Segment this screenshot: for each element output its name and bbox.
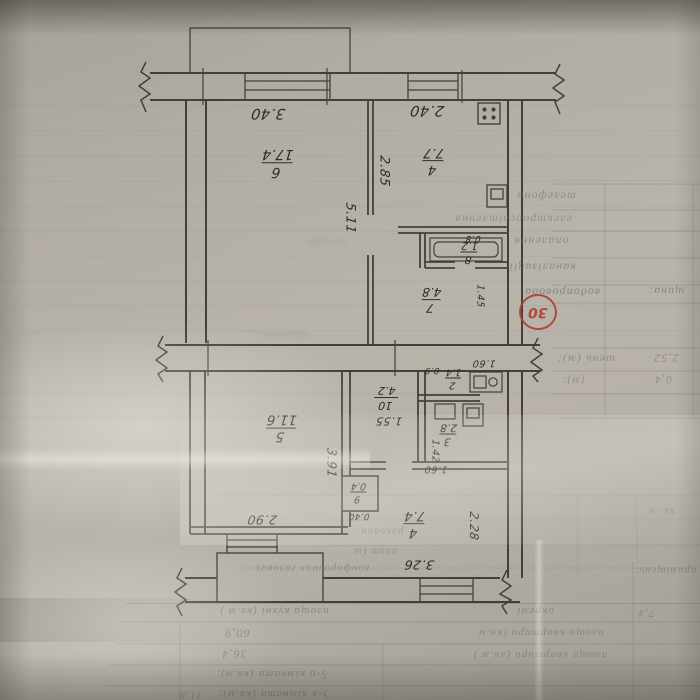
room-area: 0.4 bbox=[350, 481, 367, 492]
room-label: 5 11.6 bbox=[264, 412, 297, 443]
dim-label: 0.9 bbox=[424, 365, 440, 375]
room-label: 3 2.8 bbox=[438, 421, 457, 446]
dim-label: 2.28 bbox=[467, 511, 481, 541]
form-room3-label: 3-я кімната (кв.м): bbox=[217, 688, 328, 700]
room-label: 7 4.8 bbox=[420, 286, 442, 314]
form-living-value: 36,4 bbox=[221, 647, 246, 662]
form-utility-water: водопровода bbox=[524, 285, 600, 300]
upper-apartment-plan bbox=[139, 28, 564, 345]
dim-label: 2.90 bbox=[246, 513, 278, 528]
room-number: 10 bbox=[373, 398, 398, 412]
room5-wall bbox=[190, 527, 348, 534]
dim-label: 3.91 bbox=[325, 447, 340, 479]
lower-apartment-plan bbox=[175, 371, 522, 616]
dim-label: 1.55 bbox=[375, 415, 403, 428]
room-label: 10 4.2 bbox=[373, 385, 400, 411]
form-height-label: шень (м): bbox=[557, 352, 615, 367]
room-area: 7.7 bbox=[423, 146, 445, 161]
room-area: 1.2 bbox=[461, 239, 479, 251]
room-number: 4 bbox=[421, 161, 443, 177]
room-area: 2.8 bbox=[440, 421, 458, 433]
room-number: 6 bbox=[260, 163, 293, 180]
form-kitchen-row-mid: окремі bbox=[516, 605, 553, 617]
toilet-icon bbox=[470, 372, 502, 392]
room-number: 2 bbox=[444, 378, 461, 390]
kitchen-sink-icon bbox=[487, 185, 507, 207]
window-symbol bbox=[420, 578, 473, 602]
dim-label: 1.42 bbox=[430, 439, 441, 464]
form-utility-heating: опалення bbox=[513, 234, 568, 249]
form-utility-phone: телефона bbox=[516, 189, 575, 204]
dim-label: 5.11 bbox=[343, 202, 358, 235]
balcony-top bbox=[190, 28, 350, 73]
stamp-number: 30 bbox=[528, 304, 547, 320]
form-fragment-stoves: плит (ш bbox=[353, 546, 397, 557]
room-number: 5 bbox=[264, 428, 296, 444]
form-room5-label: 5-а кімната (кв.м): bbox=[215, 668, 327, 680]
form-utility-electric: електроосвітлення bbox=[454, 212, 572, 227]
room-label: 6 17.4 bbox=[260, 147, 295, 179]
room-area: 7.4 bbox=[404, 509, 426, 524]
room-area: 1.4 bbox=[445, 367, 462, 378]
room-area: 4.2 bbox=[374, 385, 399, 398]
room-number: 7 bbox=[420, 300, 441, 315]
window-symbol bbox=[227, 534, 277, 553]
room-area: 4.8 bbox=[422, 286, 443, 300]
form-fragment: кв. м bbox=[648, 506, 675, 517]
showthrough-fragment: орочних bbox=[262, 327, 310, 342]
form-section-label: щина: bbox=[648, 284, 685, 299]
form-room3-value: 11,8 bbox=[179, 689, 202, 700]
room-number: 9 bbox=[349, 492, 366, 504]
form-kitchen-row-label: площа кухні (кв.м ) bbox=[219, 605, 328, 617]
form-fragment-burners: конфорочних газових bbox=[255, 563, 369, 574]
room-number: 4 bbox=[402, 524, 424, 540]
room-label: 2 1.4 bbox=[444, 367, 462, 390]
dim-label: 2.85 bbox=[377, 155, 392, 188]
photo-of-floorplan-document: 3.40 2.40 2.85 5.11 0.8 1.45 6 17.4 4 7.… bbox=[0, 0, 700, 700]
floor-plan-drawing bbox=[0, 0, 700, 700]
dim-label: 0.40 bbox=[348, 511, 370, 521]
form-fragment-premises: приміщень: bbox=[634, 565, 697, 576]
room-label: 4 7.4 bbox=[402, 509, 426, 539]
dim-label: 1.45 bbox=[475, 284, 486, 309]
room-area: 11.6 bbox=[266, 412, 298, 427]
balcony-bottom bbox=[217, 553, 323, 601]
form-kitchen-row-value: 7,4 bbox=[637, 607, 654, 619]
form-total-label: площа квартири (кв.м bbox=[478, 627, 604, 639]
room-label: 9 0.4 bbox=[349, 481, 367, 504]
form-total-value: 60,9 bbox=[224, 626, 249, 641]
dim-label: 3.26 bbox=[403, 558, 435, 573]
room-area: 17.4 bbox=[261, 147, 294, 163]
window-symbol bbox=[245, 73, 458, 100]
outer-wall-top bbox=[150, 73, 556, 100]
form-row-label: (м): bbox=[561, 374, 584, 386]
form-fragment-sinks: раковин bbox=[361, 526, 404, 537]
room-number: 3 bbox=[438, 434, 456, 447]
form-height-value: 2,52 bbox=[653, 351, 678, 366]
room-number: 8 bbox=[459, 252, 477, 265]
form-living-label: площа квартири (кв.м ) bbox=[473, 649, 608, 661]
outer-wall-bottom bbox=[185, 578, 520, 602]
form-row-value: 0,4 bbox=[654, 373, 672, 385]
room-label: 8 1.2 bbox=[459, 239, 478, 264]
form-utility-sewer: каналізації bbox=[508, 260, 575, 275]
dim-label: 2.40 bbox=[409, 102, 445, 118]
showthrough-fragment: ономи bbox=[307, 233, 346, 249]
dim-label: 3.40 bbox=[250, 105, 286, 121]
room-label: 4 7.7 bbox=[421, 146, 445, 176]
dim-label: 1.60 bbox=[424, 464, 449, 475]
dim-label: 1.60 bbox=[472, 358, 497, 369]
